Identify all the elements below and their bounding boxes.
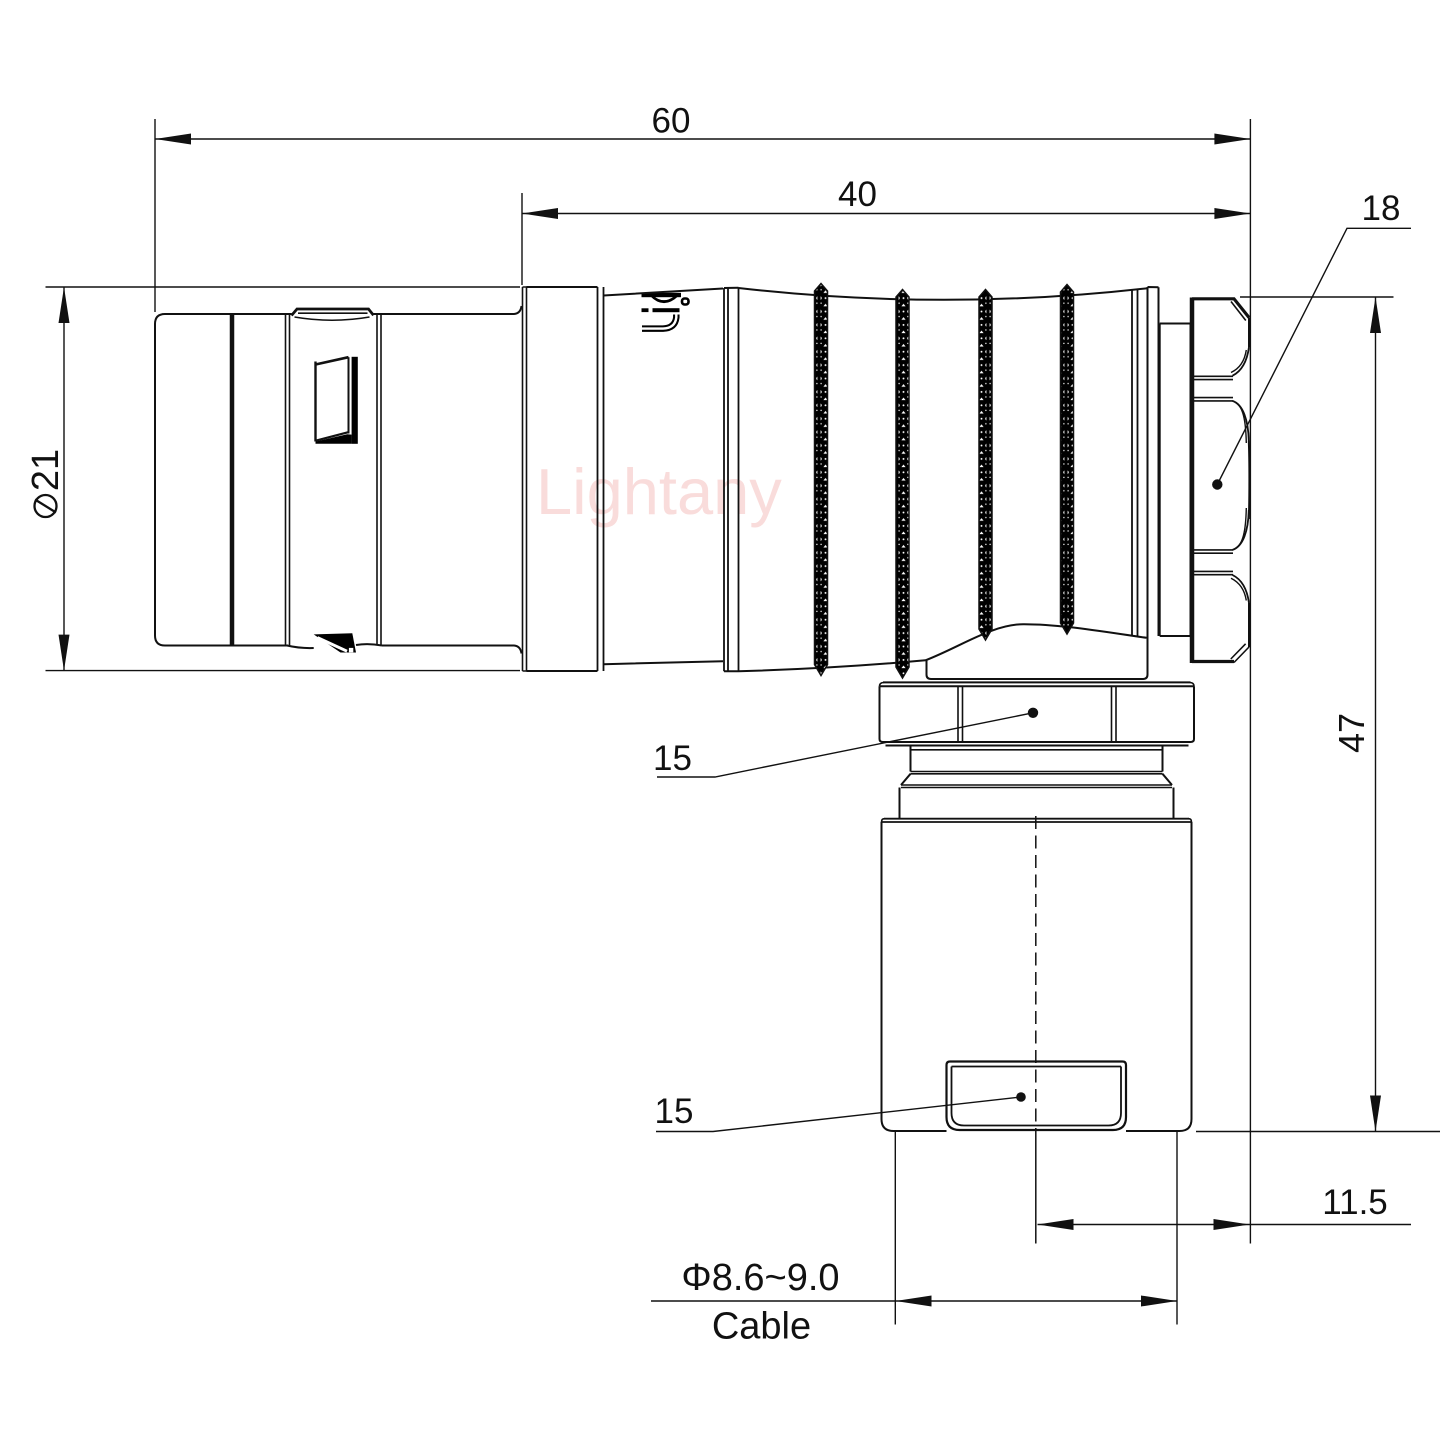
svg-text:40: 40 — [838, 175, 877, 214]
svg-text:Φ8.6~9.0: Φ8.6~9.0 — [681, 1257, 839, 1299]
svg-text:Cable: Cable — [712, 1306, 811, 1348]
svg-text:47: 47 — [1331, 713, 1372, 753]
svg-text:21: 21 — [25, 449, 67, 491]
svg-text:15: 15 — [655, 1092, 694, 1131]
svg-text:15: 15 — [653, 739, 692, 778]
svg-text:18: 18 — [1362, 189, 1401, 228]
svg-text:11.5: 11.5 — [1322, 1183, 1388, 1222]
svg-text:60: 60 — [652, 102, 691, 141]
svg-text:Lightany: Lightany — [536, 455, 782, 528]
